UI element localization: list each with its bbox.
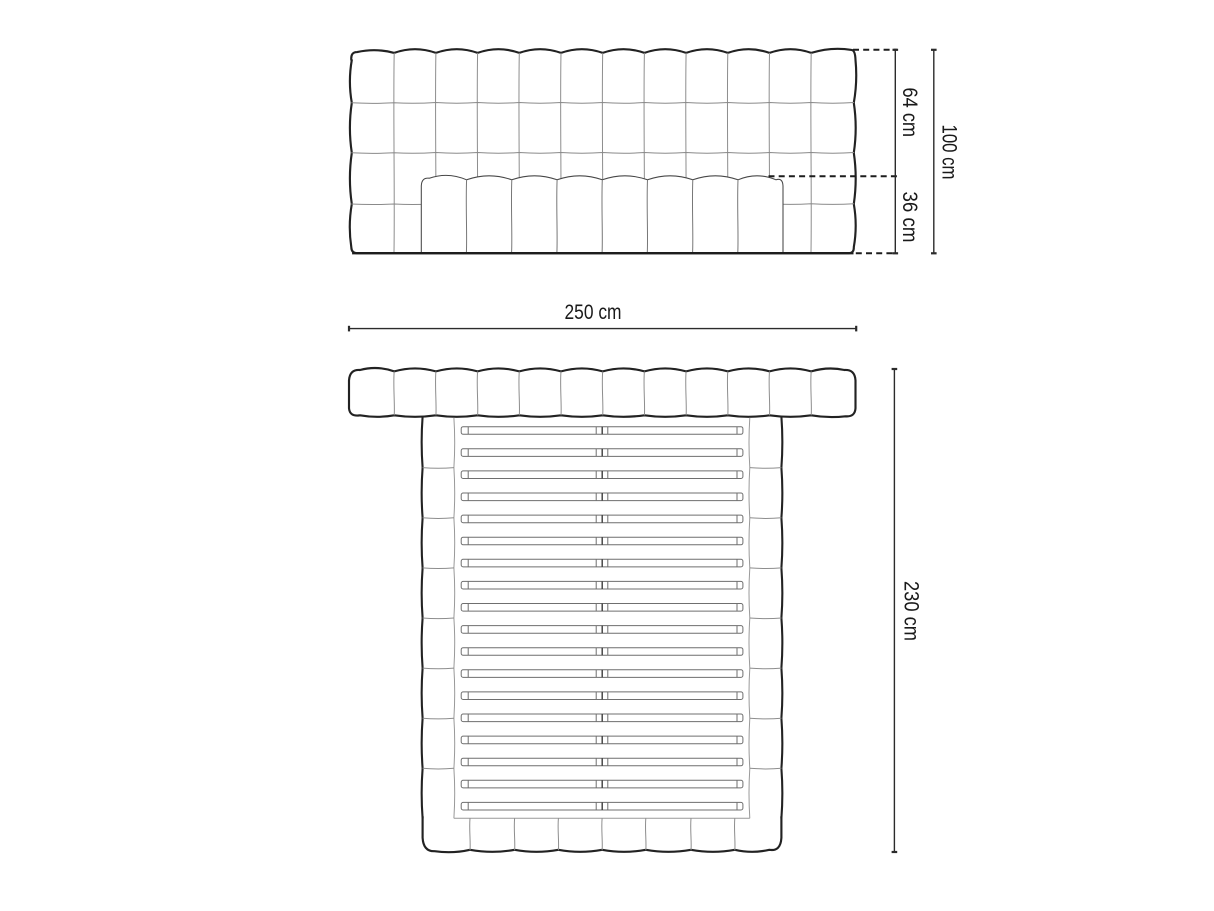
svg-text:36 cm: 36 cm	[898, 192, 921, 243]
svg-text:100 cm: 100 cm	[938, 125, 961, 180]
svg-text:250 cm: 250 cm	[565, 301, 622, 324]
svg-text:64 cm: 64 cm	[898, 88, 921, 138]
svg-text:230 cm: 230 cm	[900, 581, 923, 641]
